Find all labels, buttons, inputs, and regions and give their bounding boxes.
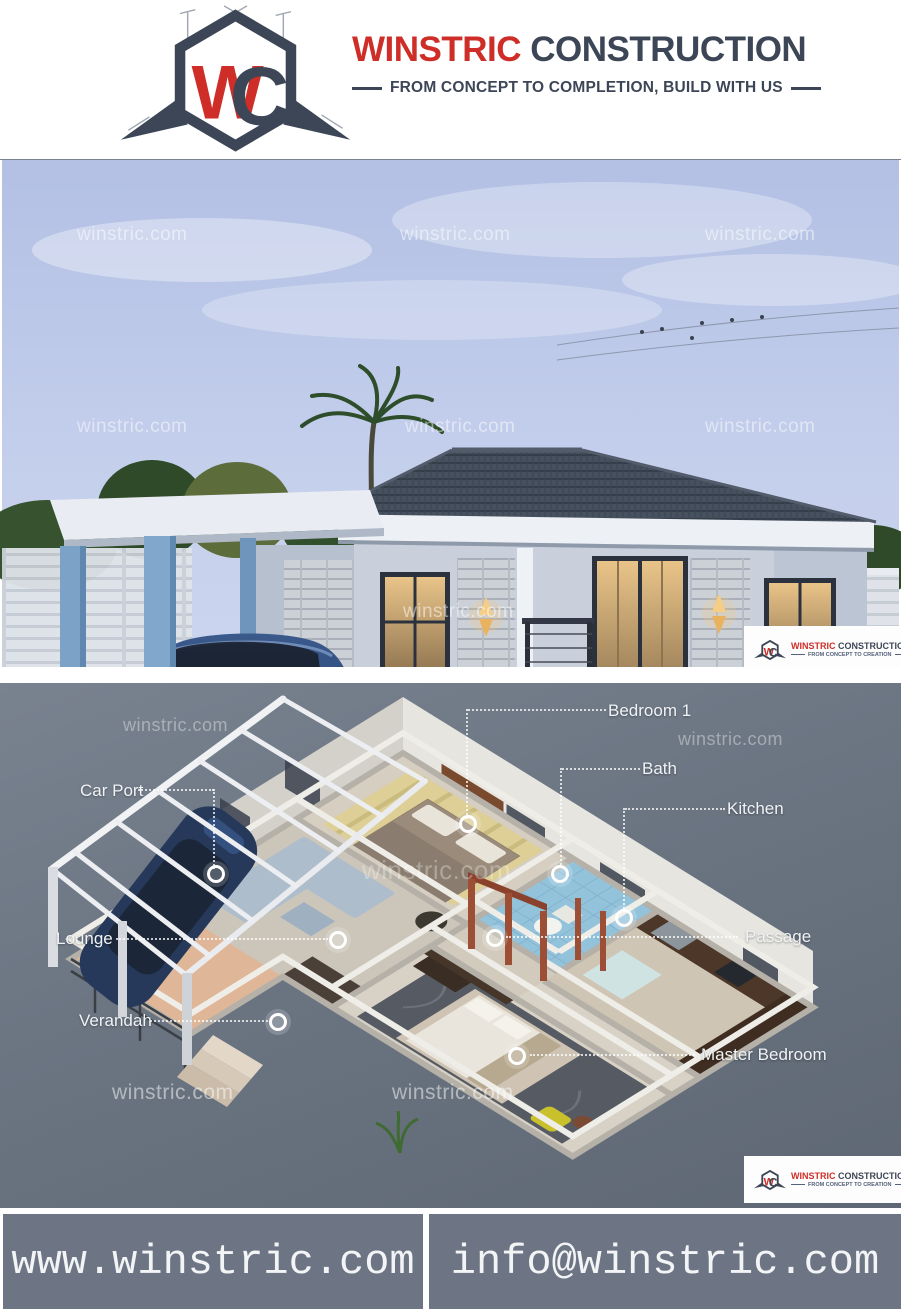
monogram-c: C [230,51,289,142]
carport-column-front [144,536,174,667]
room-marker [459,815,477,833]
brand-name: WINSTRIC CONSTRUCTION [352,30,821,70]
leader-line [466,709,468,819]
leader-line [623,808,625,912]
house-render: winstric.com winstric.com winstric.com w… [0,159,901,667]
label-text: Master Bedroom [701,1045,827,1065]
logo-chip: W C WINSTRIC CONSTRUCTION FROM CONCEPT T… [744,1156,901,1203]
leader-line [530,1054,695,1056]
logo-chip: W C WINSTRIC CONSTRUCTION FROM CONCEPT T… [744,626,901,667]
room-marker [508,1047,526,1065]
room-marker [329,931,347,949]
window-left [380,572,450,667]
contact-email: info@winstric.com [429,1214,901,1309]
room-marker [269,1013,287,1031]
leader-line [213,789,215,869]
leader-line [506,936,738,938]
website-url: www.winstric.com [3,1214,423,1309]
plant [376,1111,418,1153]
leader-line [625,808,725,810]
leader-line [468,709,606,711]
chip-brand-name: WINSTRIC CONSTRUCTION [791,1171,901,1182]
brand-name-primary: WINSTRIC [352,30,521,69]
room-marker [615,909,633,927]
label-text: Car Port [80,781,143,801]
label-text: Verandah [79,1011,152,1031]
label-text: Kitchen [727,799,784,819]
room-marker [551,865,569,883]
leader-line [562,768,640,770]
leader-line [138,789,214,791]
leader-line [150,1020,268,1022]
svg-text:C: C [769,1176,778,1189]
house-illustration [0,160,901,667]
room-marker [207,865,225,883]
company-logo-icon: W C [754,631,786,668]
brand-tagline: FROM CONCEPT TO COMPLETION, BUILD WITH U… [352,79,821,97]
leader-line [560,768,562,868]
chip-tagline: FROM CONCEPT TO CREATION [791,1182,901,1188]
label-text: Bedroom 1 [608,701,691,721]
leader-line [116,938,328,940]
svg-text:C: C [769,646,778,659]
label-text: Bath [642,759,677,779]
label-text: Lounge [56,929,113,949]
brand-name-secondary: CONSTRUCTION [530,30,806,69]
flyer-page: W C WINSTRIC CONSTRUCTION FROM CONCEPT T… [0,0,901,1314]
footer: www.winstric.com info@winstric.com [3,1214,901,1309]
chip-tagline: FROM CONCEPT TO CREATION [791,652,901,658]
header: W C WINSTRIC CONSTRUCTION FROM CONCEPT T… [0,0,901,159]
brand-text: WINSTRIC CONSTRUCTION FROM CONCEPT TO CO… [352,30,821,97]
room-marker [486,929,504,947]
company-logo-icon: W C [118,4,353,157]
chip-brand-name: WINSTRIC CONSTRUCTION [791,641,901,652]
floorplan-render: winstric.com winstric.com winstric.com w… [0,683,901,1208]
sliding-door [592,556,688,667]
label-text: Passage [745,927,811,947]
company-logo-icon: W C [754,1161,786,1199]
